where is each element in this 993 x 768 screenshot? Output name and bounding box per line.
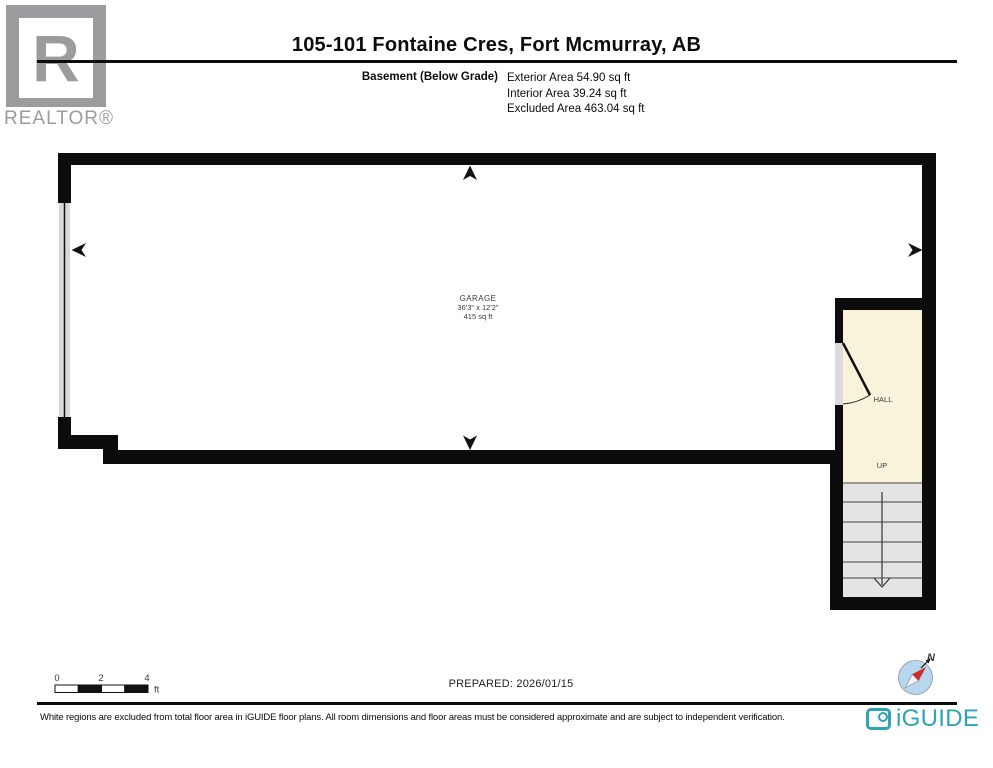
scale-tick-0: 0 (54, 673, 59, 684)
arrow-up-icon (463, 166, 477, 181)
garage-label: GARAGE (460, 294, 497, 303)
scale-tick-4: 4 (144, 673, 149, 684)
hall-door-band (835, 343, 843, 405)
prepared-date: PREPARED: 2026/01/15 (411, 678, 611, 690)
wall-hall-top (835, 298, 936, 310)
floor-plan: GARAGE 36'3" x 12'2" 415 sq ft HALL UP 0… (0, 0, 993, 768)
hall-label: HALL (874, 395, 893, 404)
stairs-up-label: UP (877, 461, 887, 470)
disclaimer-text: White regions are excluded from total fl… (40, 712, 780, 723)
arrow-left-icon (72, 243, 87, 257)
wall-hall-left-upper (835, 298, 843, 343)
compass-icon: N (899, 652, 937, 695)
garage-dimensions: 36'3" x 12'2" (457, 303, 498, 312)
garage-door (59, 203, 70, 417)
scale-unit: ft (154, 685, 160, 696)
scale-segment (78, 685, 101, 693)
arrow-right-icon (908, 243, 923, 257)
scale-tick-2: 2 (98, 673, 103, 684)
arrow-down-icon (463, 436, 477, 451)
wall-hall-bottom (830, 597, 936, 610)
iguide-logo: iGUIDE (866, 707, 979, 731)
garage-area: 415 sq ft (464, 312, 494, 321)
wall-top (58, 153, 936, 165)
iguide-brand-text: iGUIDE (896, 707, 979, 731)
scale-segment (55, 685, 78, 693)
scale-bar: 0 2 4 ft (54, 673, 159, 696)
wall-garage-bottom (103, 450, 843, 464)
footer-divider (37, 702, 957, 705)
walls (58, 153, 936, 610)
iguide-icon (866, 708, 891, 730)
wall-right (922, 153, 936, 610)
wall-hall-left-mid (835, 405, 843, 450)
scale-segment (125, 685, 148, 693)
wall-left-top-block (58, 153, 71, 203)
wall-stairs-left (830, 450, 843, 597)
north-label: N (927, 652, 936, 664)
scale-segment (102, 685, 125, 693)
